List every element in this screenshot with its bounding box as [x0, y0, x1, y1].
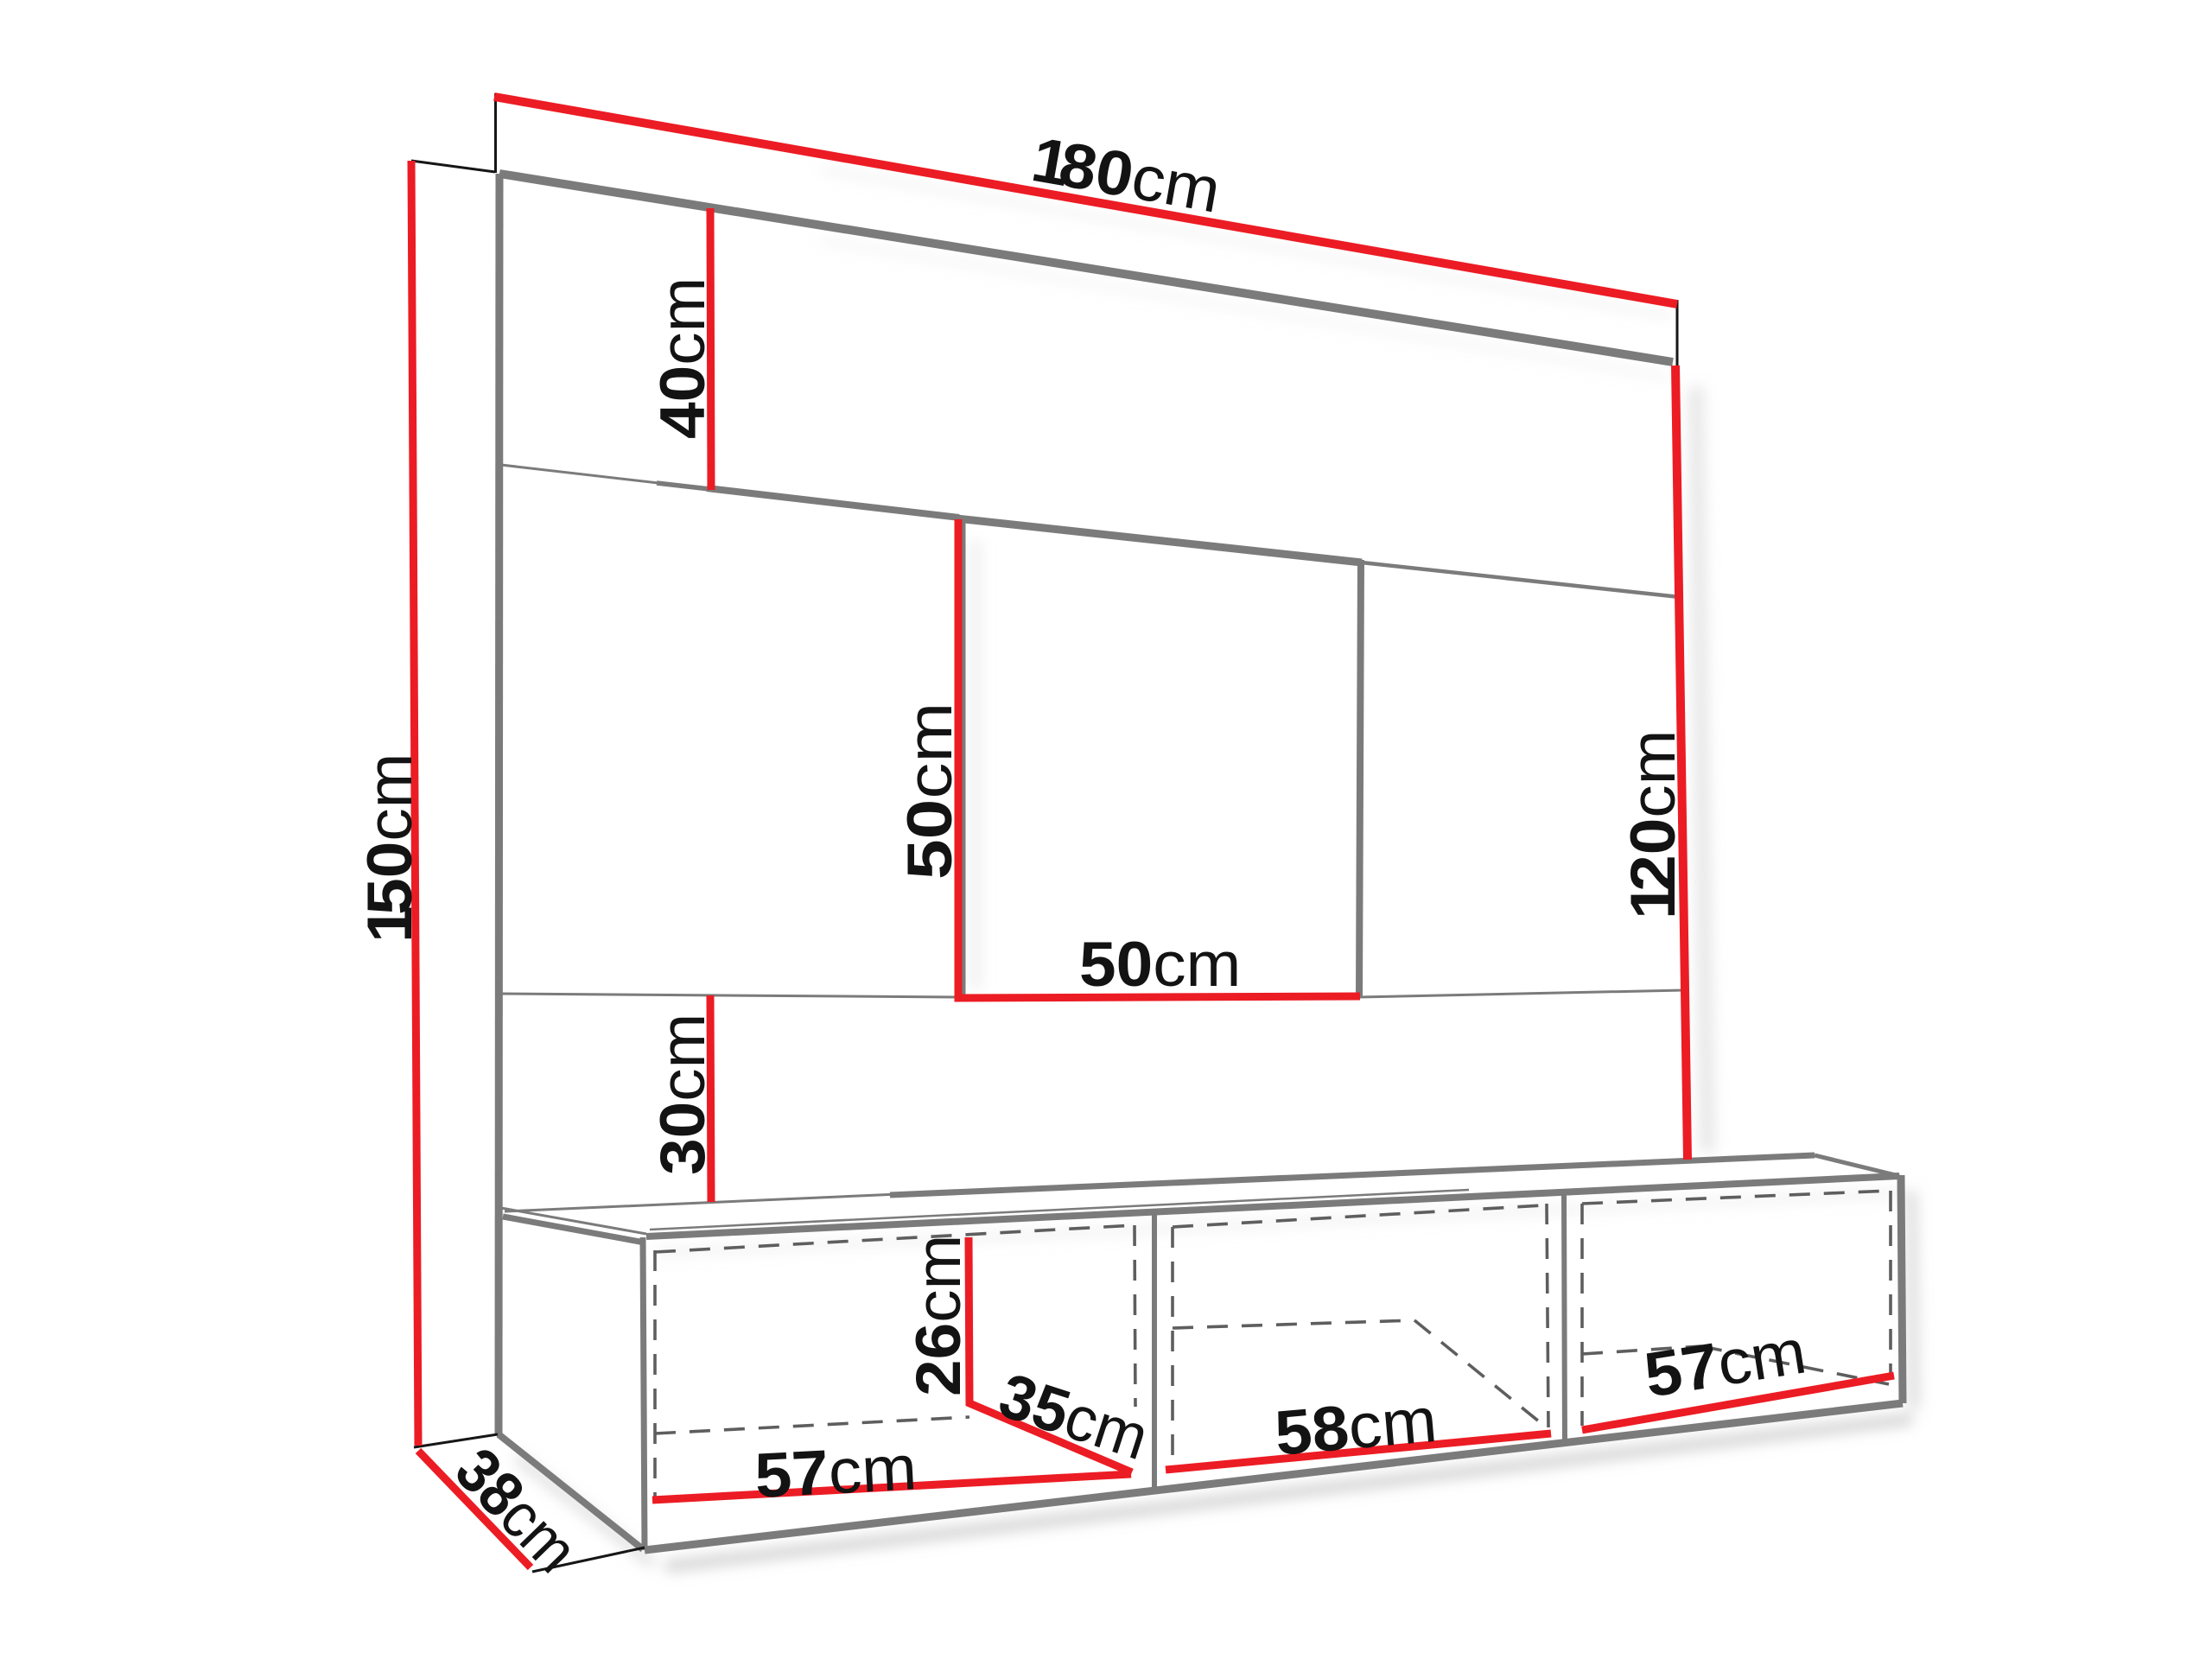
svg-text:40cm: 40cm: [647, 277, 718, 439]
svg-text:30cm: 30cm: [647, 1014, 718, 1175]
svg-text:58cm: 58cm: [1272, 1384, 1440, 1469]
svg-text:57cm: 57cm: [753, 1432, 918, 1511]
svg-text:120cm: 120cm: [1618, 729, 1688, 919]
svg-text:26cm: 26cm: [903, 1235, 974, 1396]
svg-text:50cm: 50cm: [1079, 929, 1241, 1000]
svg-text:35cm: 35cm: [991, 1361, 1156, 1474]
svg-text:150cm: 150cm: [354, 753, 425, 943]
svg-text:50cm: 50cm: [894, 702, 965, 880]
